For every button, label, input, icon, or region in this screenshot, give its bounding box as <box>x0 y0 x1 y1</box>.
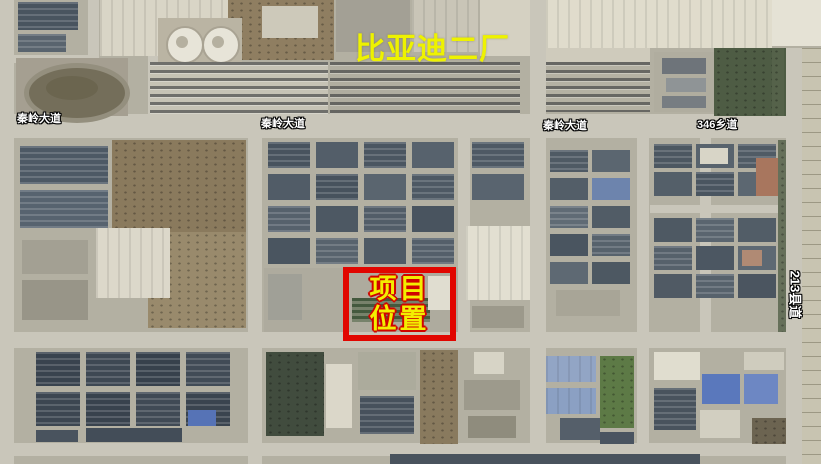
building <box>18 2 78 30</box>
satellite-map: 比亚迪二厂 秦岭大道 秦岭大道 秦岭大道 346乡道 213县道 项目 位置 <box>0 0 821 464</box>
road-label-township-346: 346乡道 <box>697 116 737 132</box>
building <box>358 352 416 390</box>
blue-roof <box>546 356 596 382</box>
building <box>20 190 108 228</box>
building <box>268 206 310 232</box>
trees <box>772 48 784 116</box>
building <box>316 142 358 168</box>
building <box>696 172 734 196</box>
building <box>316 238 358 264</box>
building <box>268 142 310 168</box>
building <box>654 144 692 168</box>
building <box>20 146 108 184</box>
trees <box>778 140 786 332</box>
building <box>316 206 358 232</box>
building <box>412 238 454 264</box>
building <box>550 234 588 256</box>
building <box>592 178 630 200</box>
solar-roof <box>136 392 180 426</box>
tank-top <box>212 36 224 48</box>
factory-title-label: 比亚迪二厂 <box>355 24 510 68</box>
building <box>474 352 504 374</box>
project-location-label: 项目 位置 <box>370 274 430 334</box>
building <box>268 274 302 320</box>
building <box>364 238 406 264</box>
building <box>662 96 706 108</box>
road-label-county-213: 213县道 <box>787 252 806 338</box>
building <box>654 274 692 298</box>
building <box>654 172 692 196</box>
dirt-field <box>420 350 458 444</box>
warehouse-roof <box>466 226 530 300</box>
building <box>364 142 406 168</box>
building <box>550 262 588 284</box>
building <box>654 352 700 380</box>
road-segment <box>248 138 262 464</box>
building <box>412 142 454 168</box>
red-roof-building <box>756 158 780 196</box>
road-segment <box>0 0 14 464</box>
blue-roof <box>744 374 778 404</box>
solar-roof <box>36 392 80 426</box>
building <box>360 396 414 434</box>
project-location-box: 项目 位置 <box>343 267 456 341</box>
building <box>472 142 524 168</box>
building <box>364 206 406 232</box>
building <box>268 238 310 264</box>
warehouse-roof <box>96 228 170 298</box>
project-label-line1: 项目 <box>370 274 430 304</box>
green-field <box>600 356 634 428</box>
solar-roof <box>86 392 130 426</box>
building <box>662 58 706 74</box>
dirt-field <box>112 140 246 232</box>
building <box>592 234 630 256</box>
dirt-field <box>752 418 786 444</box>
building <box>36 430 78 442</box>
track-infield <box>46 76 98 100</box>
building <box>18 34 66 52</box>
building <box>700 148 728 164</box>
road-segment <box>650 205 786 213</box>
building <box>468 416 516 438</box>
map-layers <box>0 0 821 464</box>
building <box>738 218 776 242</box>
building <box>550 206 588 228</box>
building <box>472 306 524 328</box>
blue-roof <box>188 410 216 426</box>
building <box>654 246 692 270</box>
building <box>268 174 310 200</box>
building <box>86 428 182 442</box>
parking-lot <box>330 62 520 114</box>
solar-roof <box>186 352 230 386</box>
building <box>464 380 520 410</box>
road-label-qinling-east: 秦岭大道 <box>543 117 587 133</box>
blue-roof <box>702 374 740 404</box>
building <box>592 150 630 172</box>
solar-roof <box>36 352 80 386</box>
building <box>654 388 696 430</box>
building <box>592 206 630 228</box>
building <box>22 280 88 320</box>
building <box>550 150 588 172</box>
building <box>738 274 776 298</box>
project-label-line2: 位置 <box>370 304 430 334</box>
building <box>592 262 630 284</box>
building <box>666 78 706 92</box>
building <box>772 0 821 46</box>
factory-roof <box>546 0 772 48</box>
solar-roof <box>86 352 130 386</box>
building <box>262 6 318 38</box>
road-label-qinling-west: 秦岭大道 <box>17 110 61 126</box>
road-segment <box>530 0 546 464</box>
building <box>472 174 524 200</box>
road-segment <box>637 138 649 464</box>
building <box>364 174 406 200</box>
building <box>326 364 352 428</box>
building <box>700 410 740 438</box>
building <box>550 178 588 200</box>
building <box>556 290 620 316</box>
apron <box>546 48 650 62</box>
truck-yard <box>546 62 650 112</box>
building <box>316 174 358 200</box>
building <box>654 218 692 242</box>
parking-lot <box>150 62 328 114</box>
building <box>412 206 454 232</box>
building <box>744 352 784 370</box>
building <box>696 218 734 242</box>
building <box>696 246 734 270</box>
building <box>22 240 88 274</box>
road-label-qinling-center: 秦岭大道 <box>261 115 305 131</box>
building <box>390 454 700 464</box>
building <box>560 418 600 440</box>
pond <box>266 352 324 436</box>
blue-roof <box>546 388 596 414</box>
building <box>696 274 734 298</box>
solar-roof <box>136 352 180 386</box>
building <box>412 174 454 200</box>
tank-top <box>176 36 188 48</box>
red-roof-building <box>742 250 762 266</box>
building <box>600 432 634 444</box>
